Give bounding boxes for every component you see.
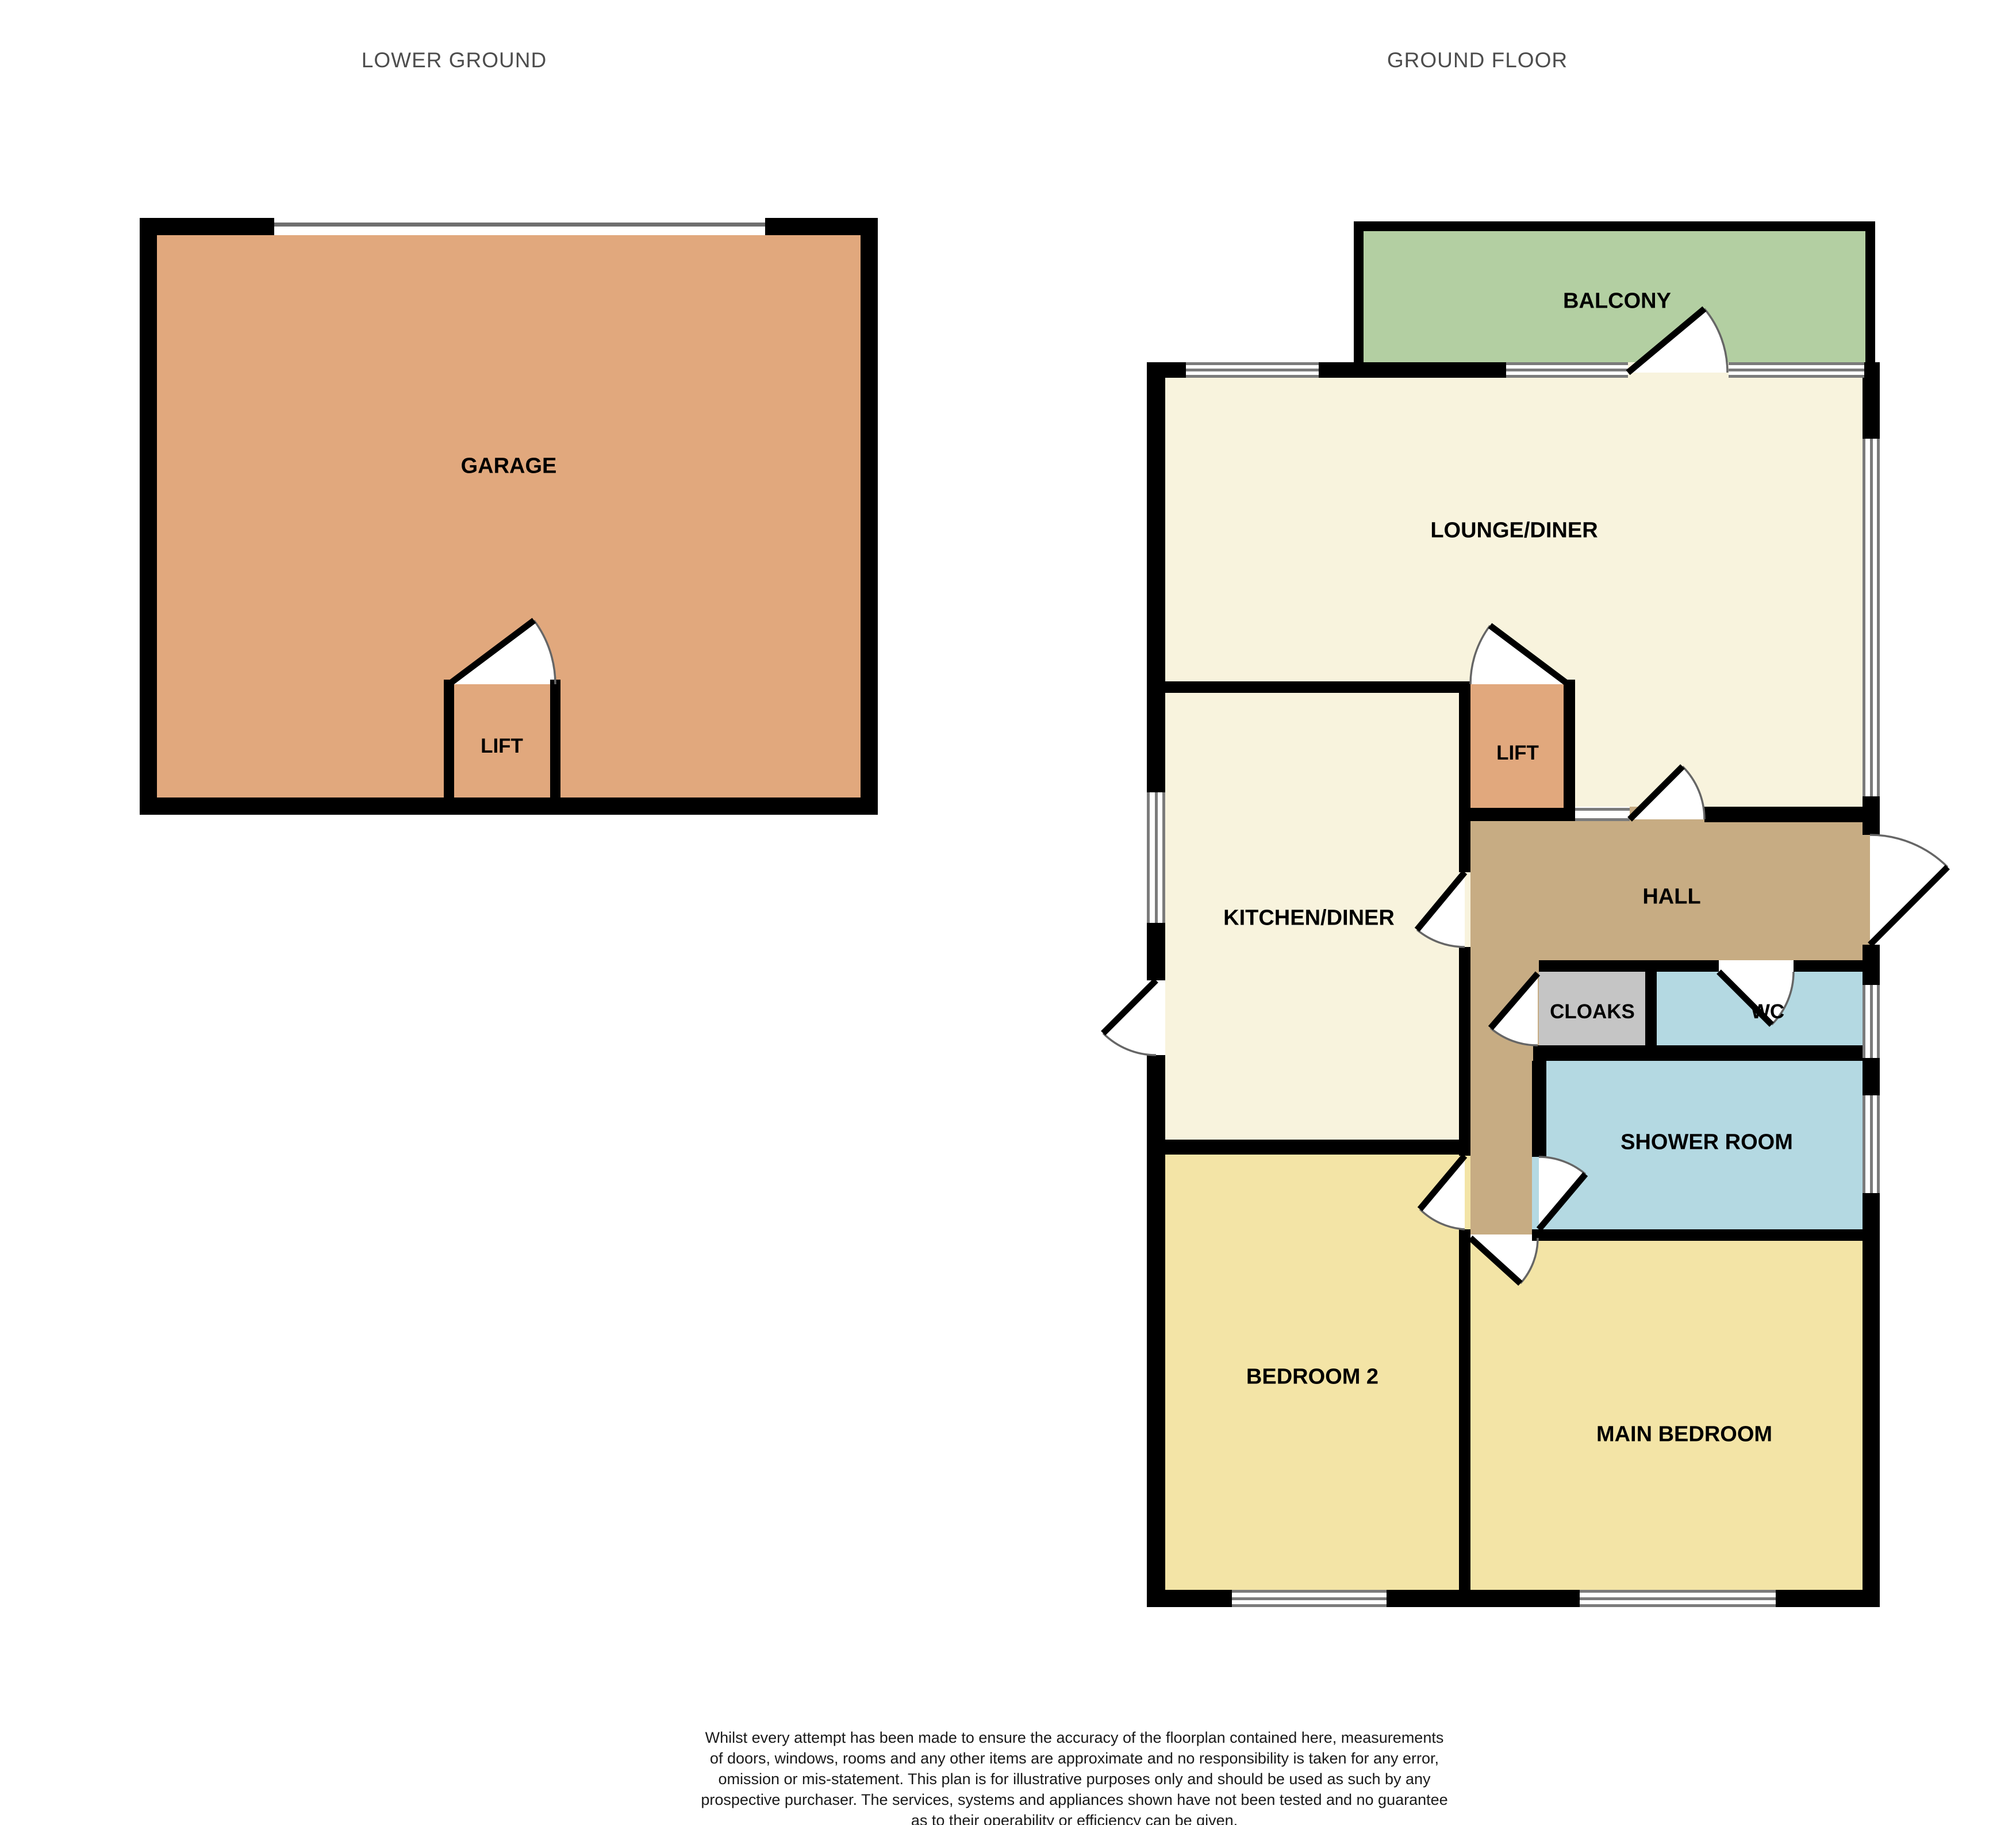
- wall: [1147, 362, 1186, 378]
- wall-balcony: [1354, 221, 1875, 231]
- wall: [1864, 362, 1880, 378]
- room-label-cloaks: CLOAKS: [1550, 1000, 1635, 1023]
- window-main-bedroom: [1580, 1590, 1776, 1607]
- wall: [444, 680, 454, 798]
- wall-cloaks-wc-divider: [1645, 972, 1657, 1045]
- wall-hall-top: [1704, 807, 1863, 822]
- wall-bedroom-divider: [1459, 1229, 1470, 1590]
- room-label-lounge-diner: LOUNGE/DINER: [1430, 519, 1598, 543]
- hall-opening-line: [1575, 808, 1630, 811]
- room-label-kitchen-diner: KITCHEN/DINER: [1223, 906, 1395, 931]
- wall-wc-top: [1794, 960, 1863, 972]
- disclaimer-line: omission or mis-statement. This plan is …: [672, 1769, 1477, 1789]
- floorplan-page: LOWER GROUND GROUND FLOOR GARAGE LIFT BA…: [0, 0, 2016, 1825]
- wall-lift-bottom: [1459, 808, 1575, 821]
- wall: [1147, 923, 1165, 980]
- wall-shower-top: [1533, 1045, 1863, 1061]
- room-label-wc: WC: [1751, 1000, 1784, 1023]
- hall-opening-line: [1575, 818, 1630, 821]
- wall: [140, 218, 274, 235]
- wall: [1147, 1590, 1232, 1607]
- disclaimer-line: of doors, windows, rooms and any other i…: [672, 1748, 1477, 1769]
- wall: [550, 680, 560, 798]
- wall: [1863, 796, 1880, 835]
- window-wc: [1863, 985, 1880, 1058]
- garage-door-line: [274, 223, 765, 227]
- wall: [1147, 362, 1165, 792]
- wall-lift-right: [1564, 680, 1575, 821]
- room-fill-main-bedroom: [1470, 1241, 1863, 1590]
- room-fills: [157, 231, 1872, 1590]
- wall: [1147, 1055, 1165, 1607]
- floor-title-lower-ground: LOWER GROUND: [362, 48, 547, 72]
- window-lounge-top-left: [1186, 362, 1319, 378]
- wall-kitchen-top: [1165, 681, 1470, 693]
- wall: [140, 218, 157, 815]
- wall: [1863, 1193, 1880, 1607]
- room-label-garage: GARAGE: [461, 454, 557, 479]
- window-lounge-top-right: [1729, 362, 1864, 378]
- wall-kitchen-bottom: [1165, 1140, 1459, 1155]
- room-label-main-bedroom: MAIN BEDROOM: [1596, 1423, 1772, 1447]
- disclaimer-line: prospective purchaser. The services, sys…: [672, 1789, 1477, 1810]
- wall: [1319, 362, 1506, 378]
- room-label-shower-room: SHOWER ROOM: [1621, 1130, 1793, 1155]
- wall-balcony: [1865, 221, 1875, 362]
- wall: [1387, 1590, 1580, 1607]
- floor-title-ground-floor: GROUND FLOOR: [1387, 48, 1568, 72]
- wall: [1776, 1590, 1880, 1607]
- window-bedroom2: [1232, 1590, 1387, 1607]
- wall: [140, 798, 878, 815]
- floorplan-drawing: [0, 0, 2016, 1825]
- window-lounge-right: [1863, 439, 1880, 796]
- wall-spine: [1459, 681, 1470, 872]
- door-swing-front-door: [1870, 835, 1948, 945]
- room-label-lift-lower: LIFT: [481, 735, 523, 758]
- room-label-hall: HALL: [1642, 885, 1700, 910]
- wall-shower-bottom: [1532, 1229, 1863, 1241]
- room-label-lift-ground: LIFT: [1496, 742, 1539, 765]
- wall: [1863, 945, 1880, 985]
- wall-spine: [1459, 947, 1470, 1156]
- wall: [1863, 1058, 1880, 1095]
- room-label-bedroom-2: BEDROOM 2: [1246, 1365, 1378, 1390]
- disclaimer: Whilst every attempt has been made to en…: [672, 1727, 1477, 1825]
- wall-shower-left: [1532, 1061, 1546, 1157]
- wall-cloaks-top: [1539, 960, 1719, 972]
- room-fill-hall-corridor: [1470, 1061, 1532, 1234]
- disclaimer-line: as to their operability or efficiency ca…: [672, 1810, 1477, 1825]
- window-lounge-under-balcony: [1506, 362, 1628, 378]
- disclaimer-line: Whilst every attempt has been made to en…: [672, 1727, 1477, 1748]
- wall-balcony: [1354, 221, 1364, 362]
- window-kitchen: [1147, 792, 1165, 923]
- window-shower: [1863, 1095, 1880, 1193]
- room-label-balcony: BALCONY: [1563, 289, 1671, 314]
- wall: [861, 218, 878, 815]
